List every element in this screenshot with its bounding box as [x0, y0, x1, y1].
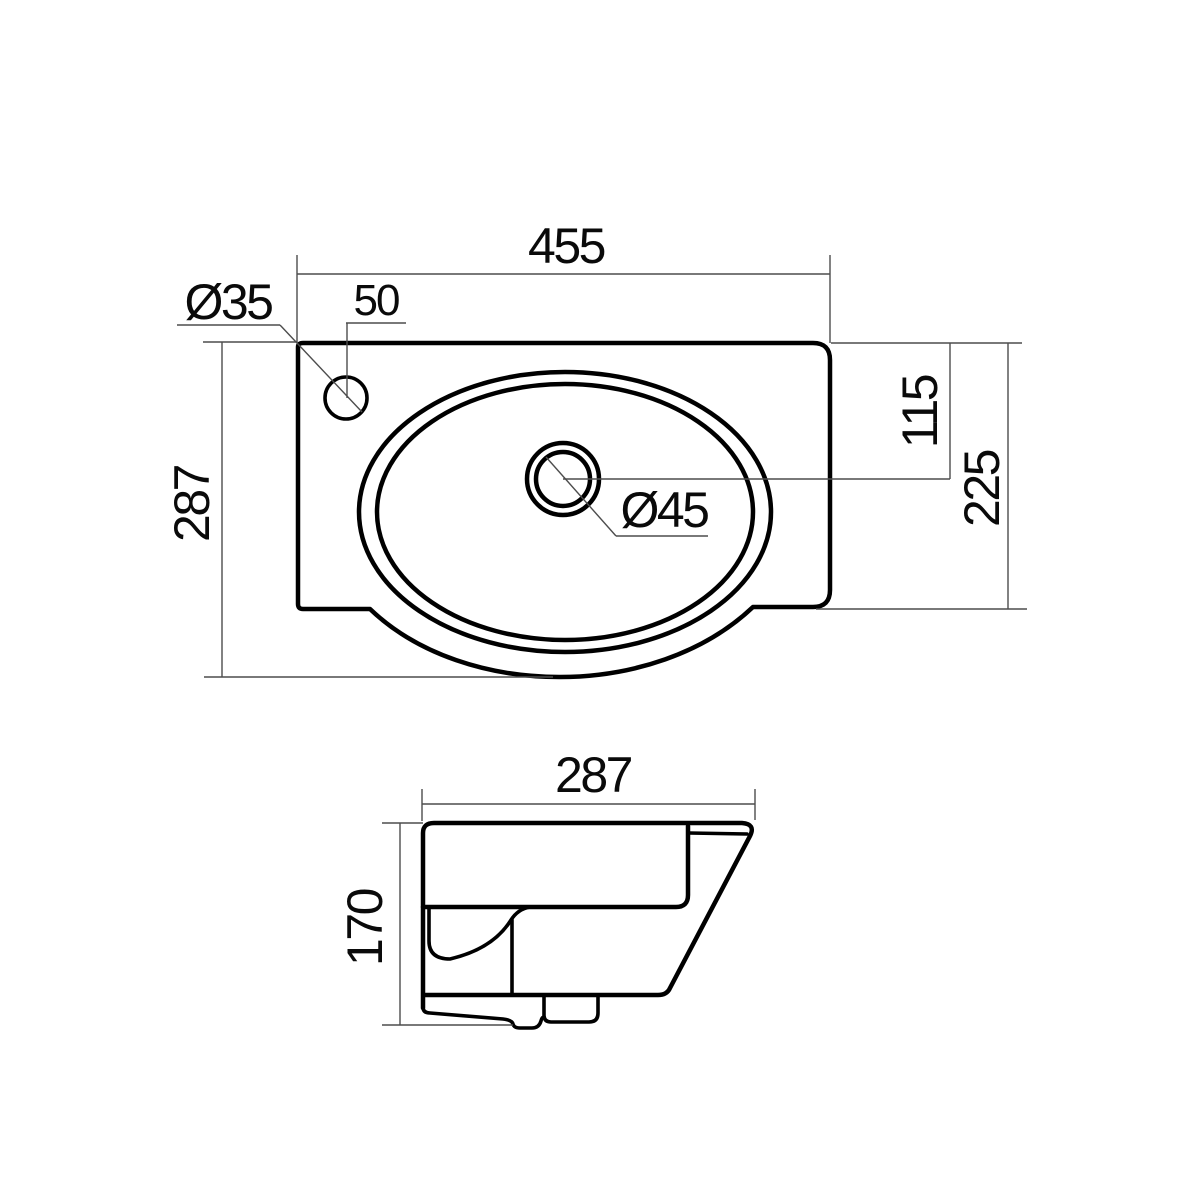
label-drain-diameter: Ø45	[546, 457, 708, 538]
dim-value-170: 170	[337, 889, 393, 966]
dim-value-225: 225	[954, 450, 1010, 527]
dim-side-depth: 287	[422, 747, 755, 821]
back-lip-line	[689, 833, 747, 834]
dim-value-50: 50	[354, 276, 399, 325]
drain-trap-box	[544, 996, 598, 1022]
dim-value-455: 455	[528, 218, 605, 274]
mounting-bracket-left	[423, 995, 544, 1028]
faucet-hole	[325, 377, 367, 419]
top-view: 455 287 Ø35 50 Ø45	[164, 218, 1027, 677]
leader-line	[280, 325, 362, 412]
label-value-d35: Ø35	[184, 274, 272, 330]
washbasin-drawing: 455 287 Ø35 50 Ø45	[0, 0, 1200, 1200]
dim-value-115: 115	[892, 375, 948, 448]
technical-drawing-page: 455 287 Ø35 50 Ø45	[0, 0, 1200, 1200]
leader-line	[546, 457, 616, 536]
side-profile-outline	[423, 823, 752, 1008]
basin-outer-rim	[359, 372, 771, 652]
rim-section	[423, 826, 688, 907]
dim-value-287-side: 287	[555, 747, 632, 803]
bowl-profile	[429, 907, 530, 959]
side-view: 287 170	[337, 747, 755, 1028]
dim-value-287: 287	[164, 465, 220, 542]
label-value-d45: Ø45	[620, 482, 708, 538]
